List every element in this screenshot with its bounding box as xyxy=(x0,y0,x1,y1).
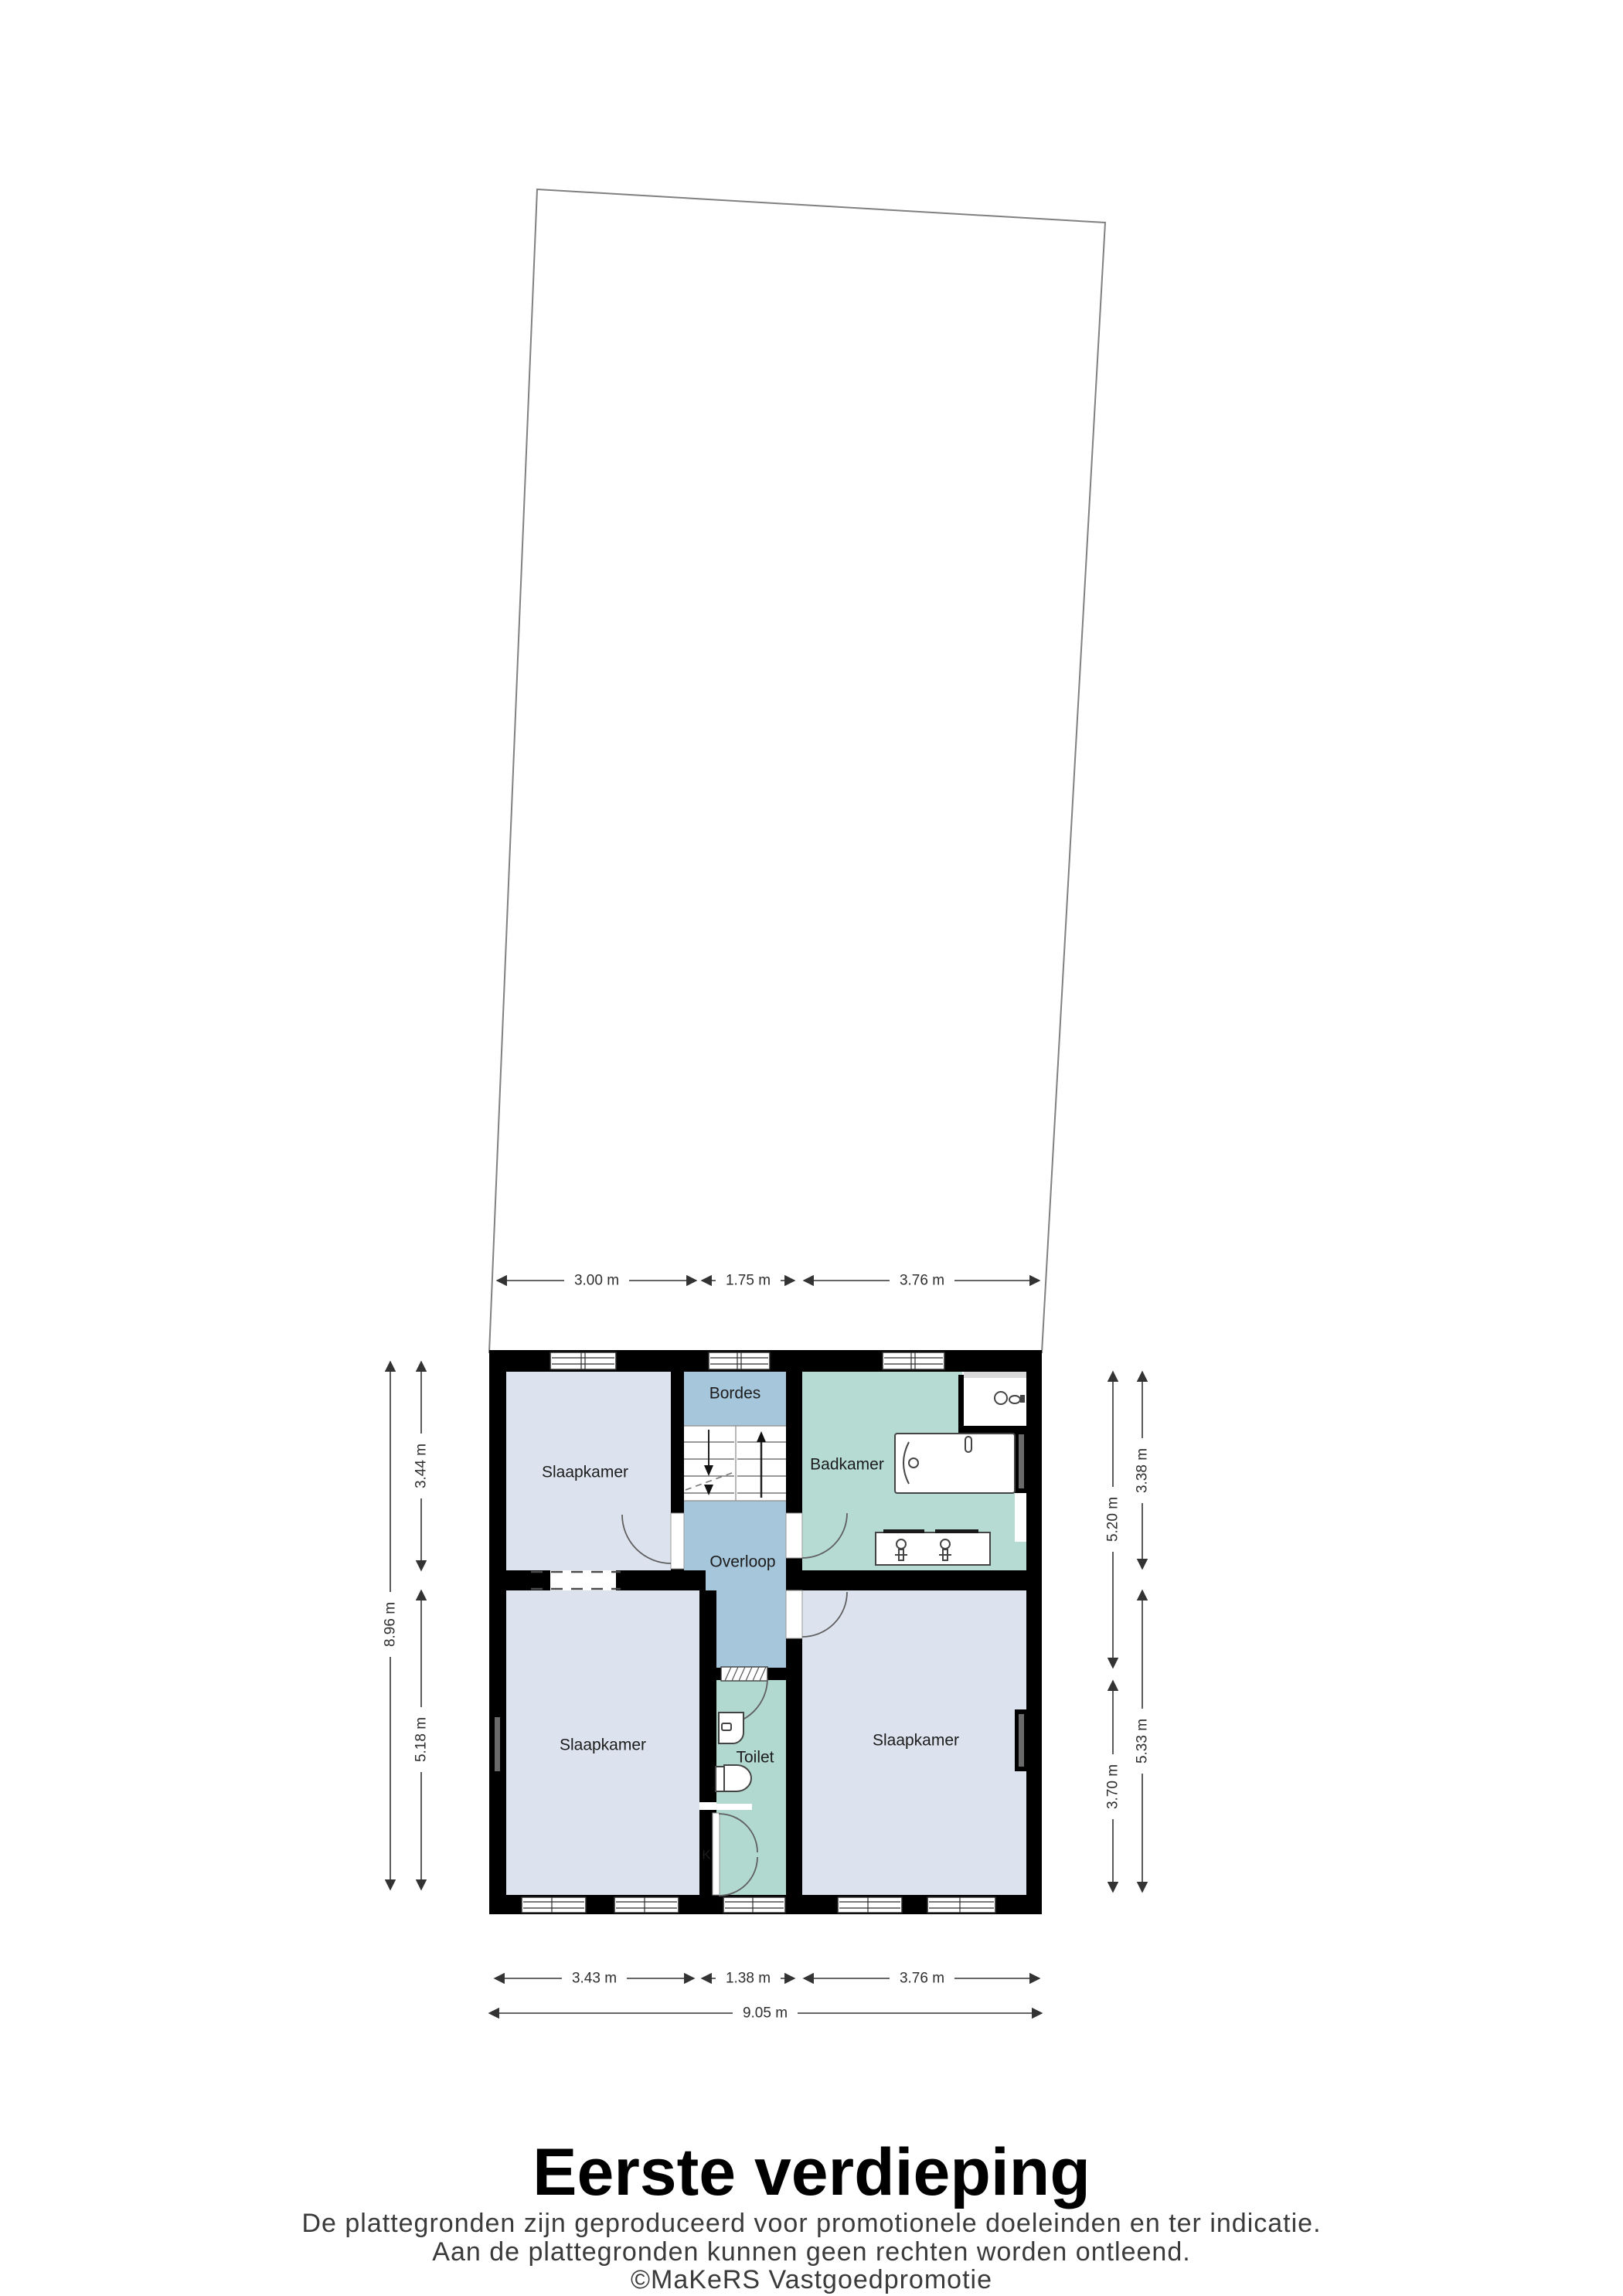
wall-niche-left xyxy=(958,1375,964,1426)
floorplan-svg: Slaapkamer Bordes Badkamer Overloop Slaa… xyxy=(0,0,1623,2296)
label-bedroom-right: Slaapkamer xyxy=(873,1732,959,1750)
plot-boundary xyxy=(489,189,1105,1352)
windows-top xyxy=(550,1352,944,1369)
opening-gap xyxy=(550,1570,616,1590)
window xyxy=(927,1897,995,1913)
label-bedroom-bottom-left: Slaapkamer xyxy=(560,1736,646,1754)
bathtub-icon xyxy=(895,1434,1015,1493)
disclaimer-line-3: ©MaKeRS Vastgoedpromotie xyxy=(631,2265,992,2294)
window xyxy=(491,1712,503,1777)
dim-bottom-3: 3.76 m xyxy=(900,1971,944,1987)
dim-bottom-total: 9.05 m xyxy=(743,2005,788,2022)
dim-right-inner-2: 3.70 m xyxy=(1105,1764,1121,1809)
disclaimer-line-1: De plattegronden zijn geproduceerd voor … xyxy=(301,2209,1321,2238)
dim-bottom-2: 1.38 m xyxy=(726,1971,771,1987)
label-badkamer: Badkamer xyxy=(810,1456,884,1474)
dim-top-1: 3.00 m xyxy=(574,1273,619,1289)
window xyxy=(522,1897,586,1913)
window xyxy=(1015,1709,1028,1771)
window xyxy=(709,1352,770,1369)
double-washbasin-icon xyxy=(876,1529,990,1565)
page-title: Eerste verdieping xyxy=(532,2135,1091,2209)
window xyxy=(723,1897,785,1913)
stairwell xyxy=(684,1426,786,1501)
label-toilet: Toilet xyxy=(736,1749,774,1767)
label-bordes: Bordes xyxy=(709,1385,761,1403)
window xyxy=(883,1352,944,1369)
wall-bathroom-bottom xyxy=(802,1570,1026,1590)
toilet-icon xyxy=(716,1765,751,1791)
window xyxy=(1015,1430,1028,1493)
floorplan-page: Slaapkamer Bordes Badkamer Overloop Slaa… xyxy=(0,0,1623,2296)
niche-top-window xyxy=(964,1372,1026,1378)
dim-right-outer-2: 5.33 m xyxy=(1135,1719,1151,1764)
label-bedroom-top-left: Slaapkamer xyxy=(542,1464,628,1481)
window xyxy=(614,1897,679,1913)
label-overloop: Overloop xyxy=(709,1553,775,1571)
dim-right-outer-1: 3.38 m xyxy=(1135,1448,1151,1493)
dim-top-2: 1.75 m xyxy=(726,1273,771,1289)
caption: Eerste verdieping De plattegronden zijn … xyxy=(301,2135,1321,2294)
window xyxy=(550,1352,616,1369)
window xyxy=(838,1897,902,1913)
dim-top-3: 3.76 m xyxy=(900,1273,944,1289)
dim-left-total: 8.96 m xyxy=(383,1602,399,1647)
dim-left-1: 3.44 m xyxy=(413,1444,430,1488)
dim-bottom-1: 3.43 m xyxy=(572,1971,617,1987)
dim-left-2: 5.18 m xyxy=(413,1717,430,1762)
wall-toilet-left xyxy=(699,1590,716,1807)
disclaimer-line-2: Aan de plattegronden kunnen geen rechten… xyxy=(432,2237,1190,2267)
dim-right-inner-1: 5.20 m xyxy=(1105,1497,1121,1542)
hand-washbasin-icon xyxy=(719,1713,743,1743)
label-closet: K xyxy=(702,1848,711,1862)
